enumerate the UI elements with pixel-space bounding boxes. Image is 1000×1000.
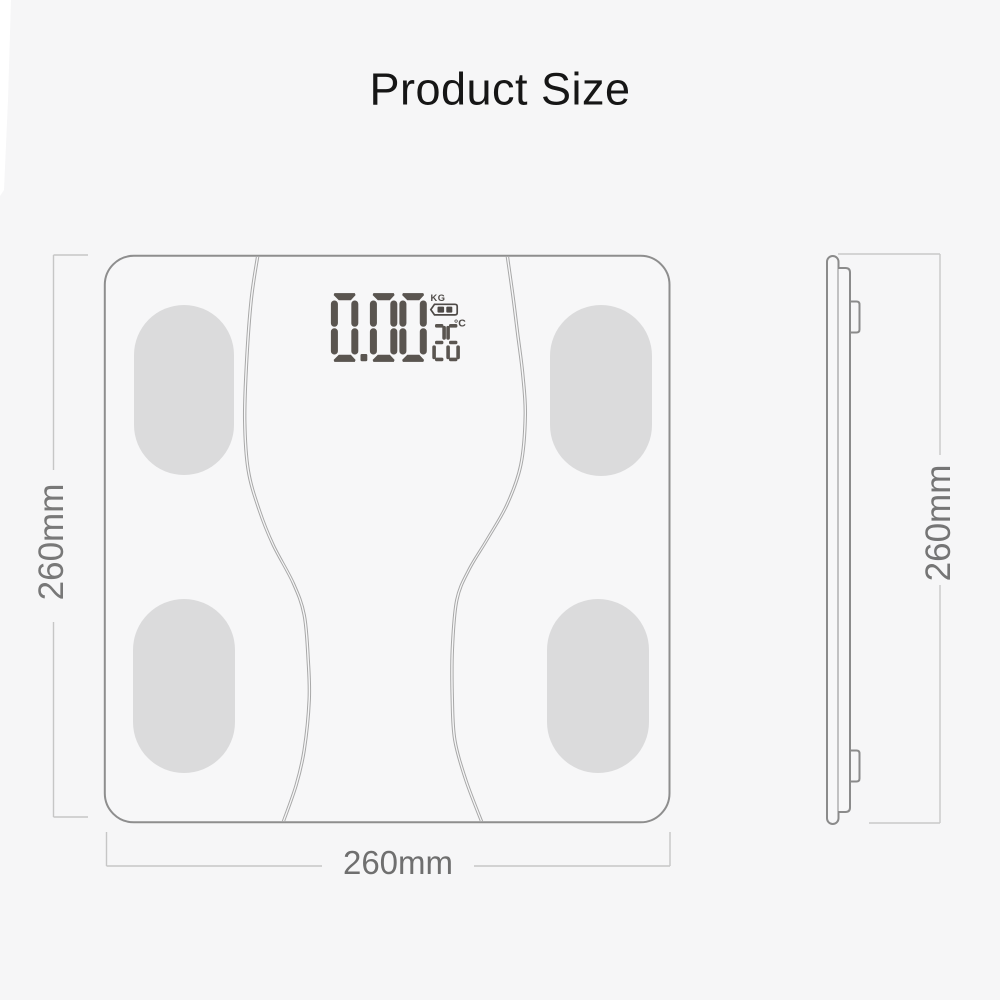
- svg-text:°C: °C: [454, 318, 466, 330]
- svg-text:260mm: 260mm: [32, 484, 71, 601]
- svg-text:260mm: 260mm: [343, 844, 453, 881]
- svg-text:KG: KG: [431, 293, 446, 303]
- svg-text:Product Size: Product Size: [369, 64, 630, 115]
- svg-text:260mm: 260mm: [919, 465, 958, 582]
